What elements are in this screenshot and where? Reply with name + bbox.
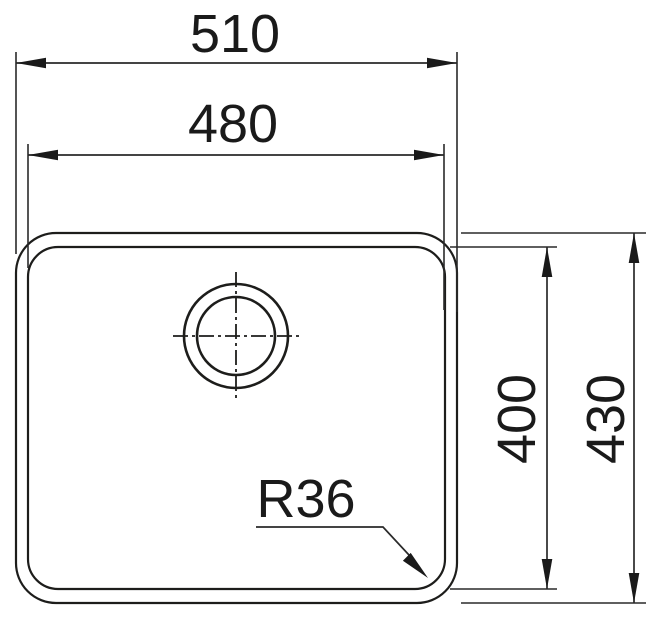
leader-arrowhead [403, 553, 428, 578]
corner-radius-callout: R36 [256, 469, 428, 578]
drain-hole [173, 272, 300, 399]
sink-dimension-drawing: 510 480 400 430 [0, 0, 658, 620]
arrowhead-top [629, 233, 640, 263]
dim-label-outer-height: 430 [576, 374, 636, 464]
dim-label-inner-height: 400 [487, 374, 547, 464]
sink-outer-edge [16, 233, 457, 603]
dim-label-outer-width: 510 [190, 4, 280, 64]
arrowhead-left [16, 58, 46, 69]
dimension-inner-height: 400 [450, 247, 557, 589]
technical-drawing-canvas: 510 480 400 430 [0, 0, 658, 620]
arrowhead-bottom [629, 573, 640, 603]
dim-label-inner-width: 480 [188, 94, 278, 154]
arrowhead-top [542, 247, 553, 277]
dimension-outer-width: 510 [16, 4, 457, 312]
arrowhead-left [28, 150, 58, 161]
arrowhead-bottom [542, 559, 553, 589]
arrowhead-right [427, 58, 457, 69]
leader-line [256, 527, 409, 555]
arrowhead-right [414, 150, 444, 161]
radius-label: R36 [256, 469, 355, 529]
sink-outline [16, 233, 457, 603]
